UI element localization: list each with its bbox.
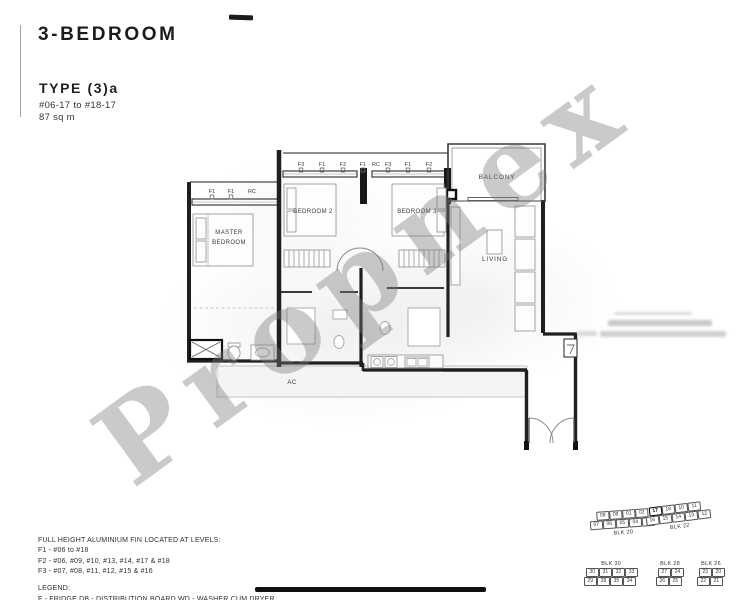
- key-plan-unit: 17: [649, 506, 662, 516]
- fin-note-f2: F2 - #06, #09, #10, #13, #14, #17 & #18: [38, 557, 221, 567]
- key-plan-block: BLK 2827242625: [656, 560, 684, 587]
- label-master-bedroom-1: MASTER: [215, 230, 243, 236]
- fin-label: F3: [385, 162, 391, 168]
- key-plan-unit: 27: [658, 568, 671, 577]
- key-plan-unit: 01: [622, 509, 635, 518]
- key-plan-unit: 16: [646, 516, 659, 526]
- fin-label: F1: [405, 162, 411, 168]
- floor-plan-page: 3-BEDROOM TYPE (3)a #06-17 to #18-17 87 …: [0, 0, 738, 600]
- key-plan-unit: 11: [688, 501, 701, 511]
- fin-note-f3: F3 - #07, #08, #11, #12, #15 & #16: [38, 567, 221, 577]
- key-plan-unit: 35: [610, 577, 623, 586]
- fin-labels-master: F1F1RC: [209, 189, 256, 199]
- key-plan-block: BLK 303031323329283534: [584, 560, 638, 587]
- label-balcony: BALCONY: [479, 174, 516, 181]
- key-plan-unit: 30: [586, 568, 599, 577]
- key-plan-unit: 05: [616, 519, 629, 528]
- label-bedroom-2: BEDROOM 2: [293, 209, 333, 215]
- key-plan-unit: 23: [699, 568, 712, 577]
- kitchen-fixtures: [368, 355, 443, 368]
- label-ac: AC: [287, 380, 296, 386]
- key-plan-unit: 28: [597, 577, 610, 586]
- key-plan-unit: 09: [609, 510, 622, 519]
- key-plan-unit: 32: [612, 568, 625, 577]
- key-plan-unit: 14: [672, 513, 685, 523]
- key-plan-block: BLK 2623202221: [697, 560, 725, 587]
- fin-label: F1: [209, 189, 215, 195]
- fin-tick: [210, 195, 214, 199]
- balcony-railing: [447, 144, 545, 202]
- key-plan-unit: 13: [685, 511, 698, 521]
- fin-label: RC: [248, 189, 256, 195]
- key-plan-block-label: BLK 30: [584, 561, 638, 567]
- fin-notes: FULL HEIGHT ALUMINIUM FIN LOCATED AT LEV…: [38, 536, 221, 578]
- key-plan-unit: 22: [697, 577, 710, 586]
- agent-stamp-line4: [577, 331, 597, 336]
- key-plan-block-label: BLK 26: [697, 561, 725, 567]
- living-furniture: [451, 206, 535, 331]
- agent-stamp-line3: [600, 331, 726, 337]
- key-plan-unit: 20: [712, 568, 725, 577]
- key-plan-unit: 29: [584, 577, 597, 586]
- fin-label: F3: [298, 162, 304, 168]
- legend-title: LEGEND:: [38, 585, 70, 592]
- key-plan-unit: 12: [698, 510, 711, 520]
- label-master-bedroom-2: BEDROOM: [212, 240, 246, 246]
- key-plan-unit: 10: [675, 503, 688, 513]
- db-box: [564, 339, 577, 357]
- key-plan-unit: 33: [625, 568, 638, 577]
- key-plan-unit: 06: [603, 520, 616, 529]
- label-bedroom-3: BEDROOM 3: [397, 209, 437, 215]
- fin-label: F1: [360, 162, 366, 168]
- fin-tick: [229, 195, 233, 199]
- fin-note-f1: F1 - #06 to #18: [38, 546, 221, 556]
- agent-stamp-line2: [608, 320, 712, 326]
- bathroom-fixtures: [287, 308, 440, 349]
- key-plan-unit: 21: [710, 577, 723, 586]
- fin-label: RC: [372, 162, 380, 168]
- key-plan-block-label: BLK 28: [656, 561, 684, 567]
- fin-label: F1: [319, 162, 325, 168]
- key-plan-unit: 34: [623, 577, 636, 586]
- key-plan-unit: 18: [662, 504, 675, 514]
- fin-label: F2: [340, 162, 346, 168]
- key-plan-unit: 15: [659, 514, 672, 524]
- agent-stamp-line1: [614, 312, 692, 315]
- key-plan-unit: 26: [656, 577, 669, 586]
- key-plan-unit: 31: [599, 568, 612, 577]
- bedroom2-furniture: [284, 184, 336, 267]
- legend-line: F - FRIDGE DB - DISTRIBUTION BOARD WD - …: [38, 596, 275, 600]
- key-plan-unit: 24: [671, 568, 684, 577]
- fin-label: F2: [426, 162, 432, 168]
- scale-bar: [255, 587, 486, 592]
- key-plan-unit: 07: [590, 521, 603, 530]
- label-living: LIVING: [482, 256, 508, 263]
- fin-label: F1: [228, 189, 234, 195]
- bedroom3-furniture: [392, 184, 446, 267]
- site-key-plan: 080901020706050403BLK 201718101116151413…: [582, 498, 738, 600]
- key-plan-unit: 25: [669, 577, 682, 586]
- key-plan-unit: 08: [596, 511, 609, 520]
- shaft-box: [190, 340, 222, 359]
- fin-notes-title: FULL HEIGHT ALUMINIUM FIN LOCATED AT LEV…: [38, 536, 221, 546]
- key-plan-unit: 04: [629, 518, 642, 527]
- key-plan-block: 171810111615141312BLK 22: [645, 500, 713, 535]
